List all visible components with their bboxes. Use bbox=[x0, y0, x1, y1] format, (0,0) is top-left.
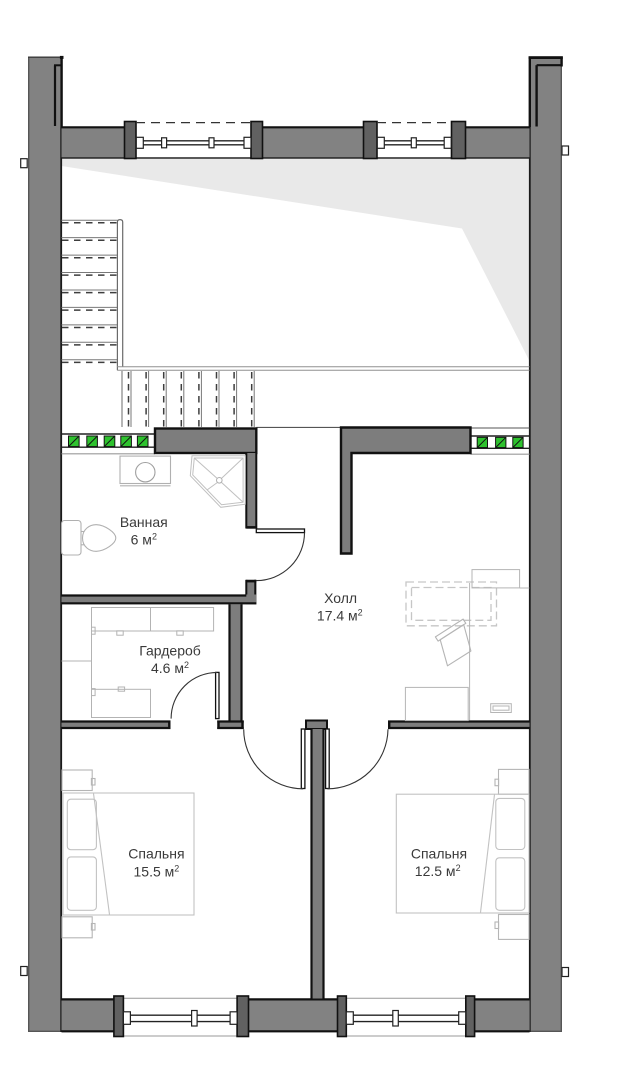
svg-text:Спальня: Спальня bbox=[411, 846, 467, 862]
svg-text:17.4 м2: 17.4 м2 bbox=[317, 608, 363, 624]
svg-text:12.5 м2: 12.5 м2 bbox=[415, 863, 461, 879]
svg-text:6 м2: 6 м2 bbox=[131, 531, 157, 547]
svg-text:Холл: Холл bbox=[324, 590, 357, 606]
svg-text:Спальня: Спальня bbox=[128, 846, 184, 862]
svg-text:4.6 м2: 4.6 м2 bbox=[151, 660, 189, 676]
svg-text:15.5 м2: 15.5 м2 bbox=[134, 863, 180, 879]
svg-text:Ванная: Ванная bbox=[120, 514, 168, 530]
svg-text:Гардероб: Гардероб bbox=[139, 643, 201, 659]
